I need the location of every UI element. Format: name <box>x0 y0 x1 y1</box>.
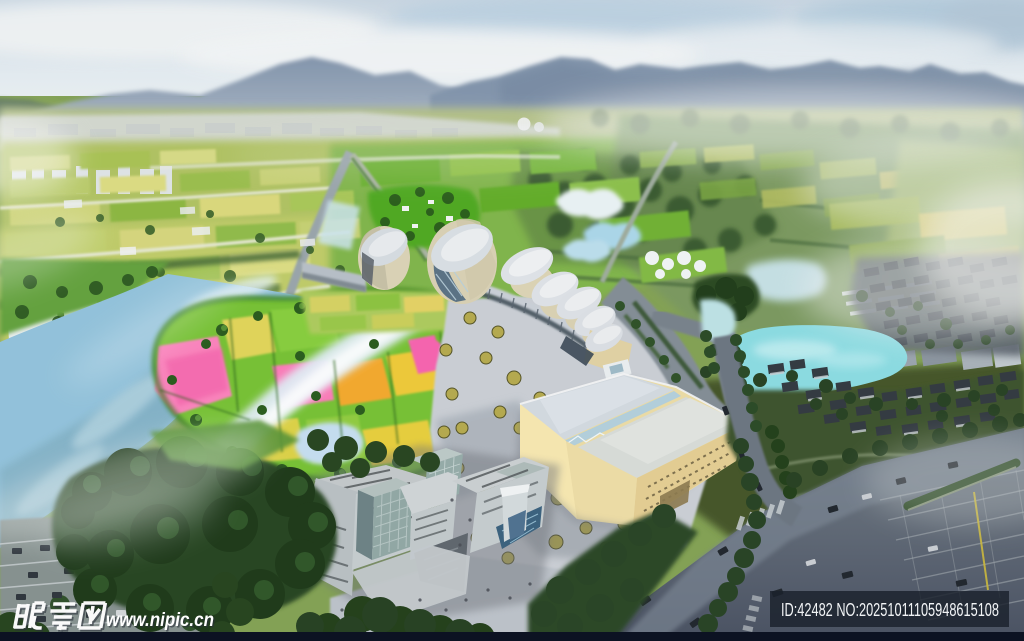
svg-text:www.nipic.cn: www.nipic.cn <box>106 610 214 631</box>
svg-text:ID:42482 NO:202510111059486151: ID:42482 NO:20251011105948615108 <box>781 600 999 620</box>
